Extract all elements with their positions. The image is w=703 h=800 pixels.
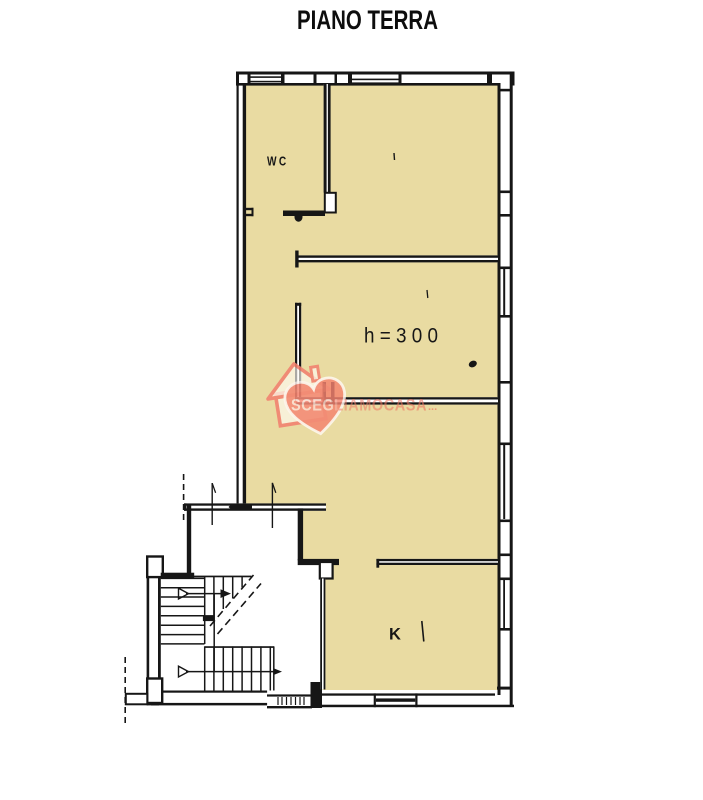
svg-text:PIANO TERRA: PIANO TERRA (297, 5, 438, 35)
svg-text:K: K (389, 626, 401, 644)
svg-text:SCEGLIAMOCASA: SCEGLIAMOCASA (291, 397, 427, 415)
svg-text:WC: WC (267, 153, 289, 168)
svg-text:...: ... (428, 401, 437, 413)
svg-text:h = 3 0 0: h = 3 0 0 (364, 325, 438, 348)
